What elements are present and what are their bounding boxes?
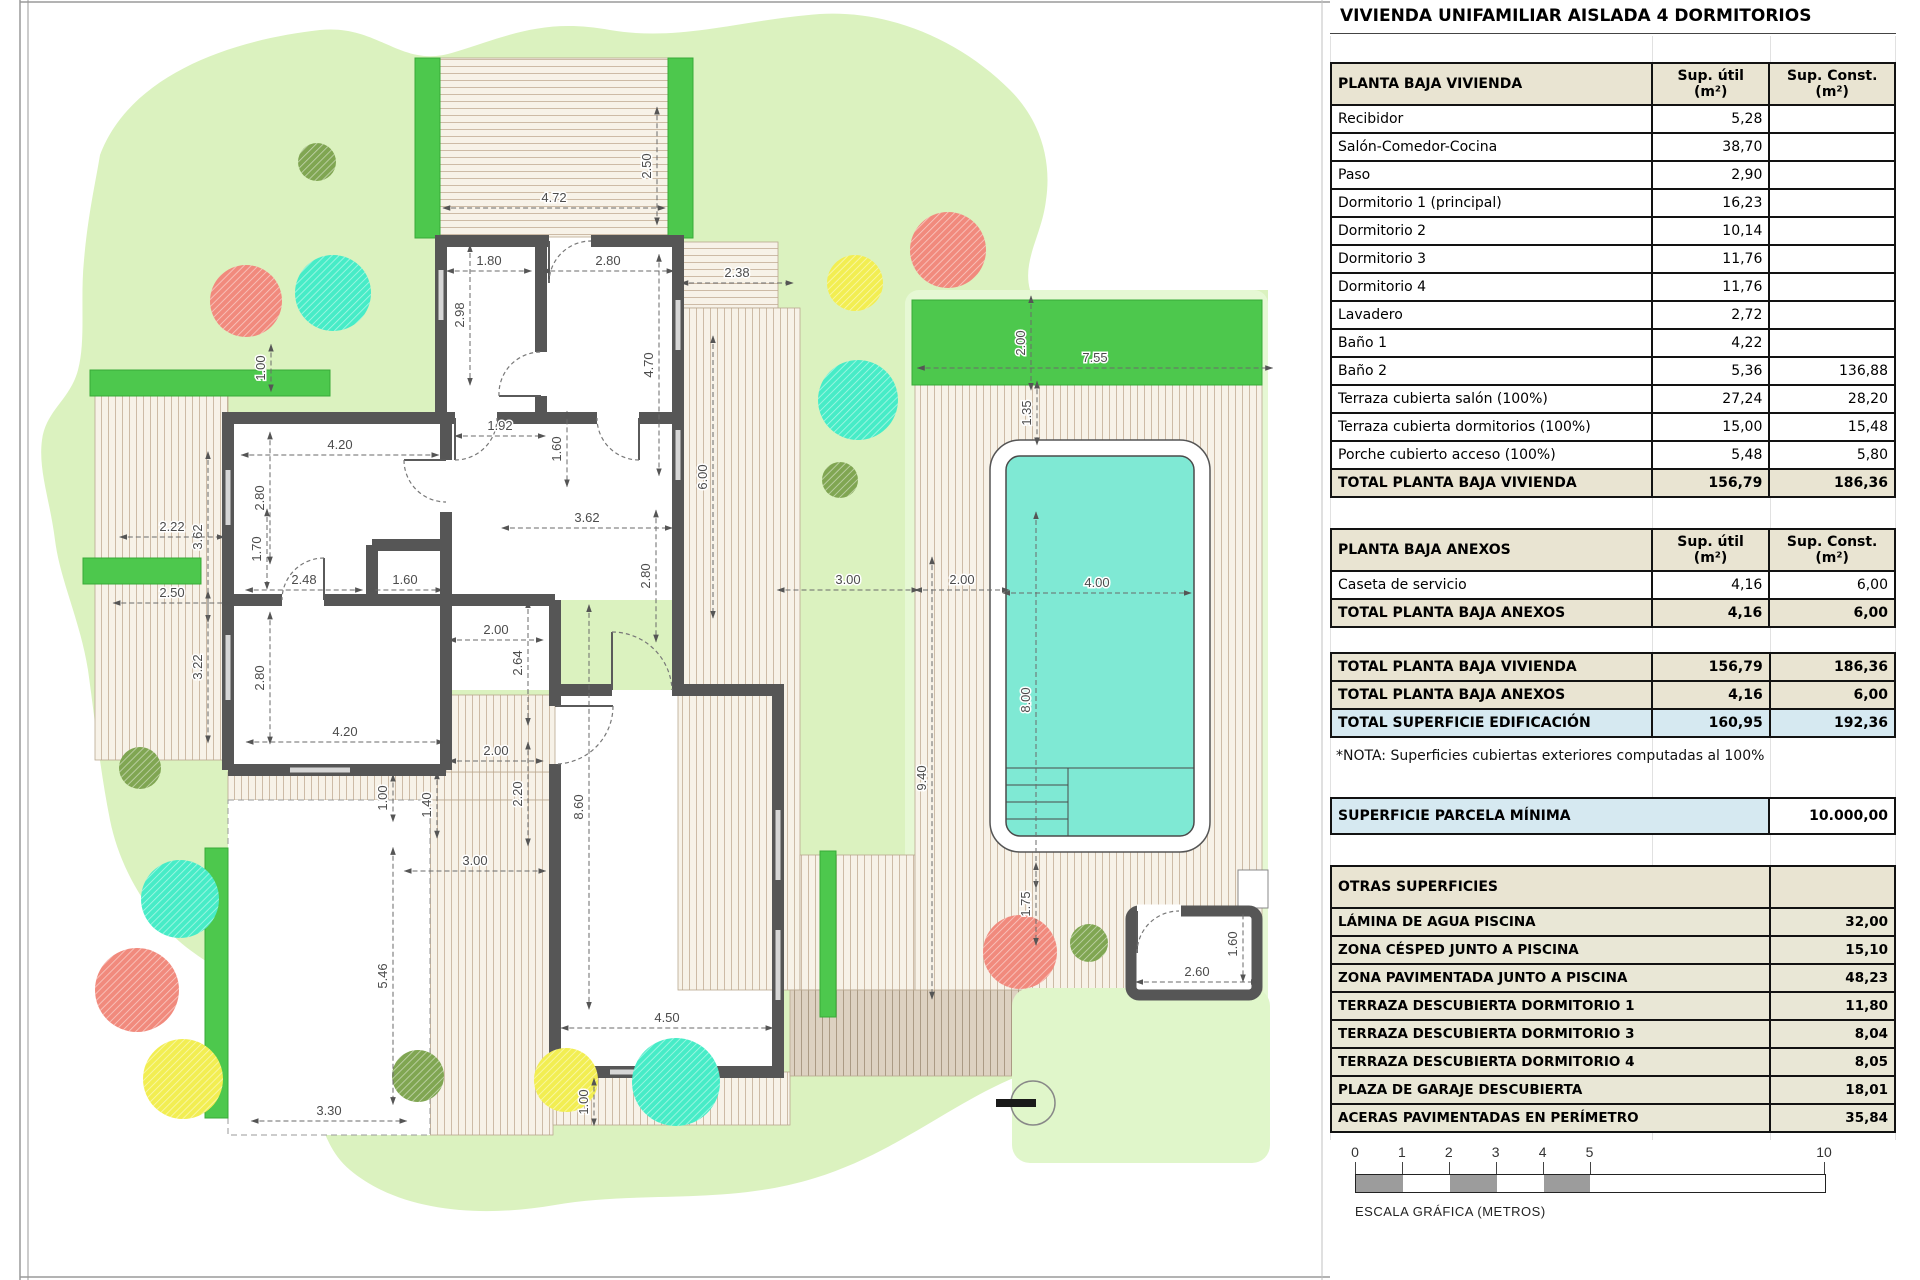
cell-value: 2,72 [1652,301,1769,329]
cell-label: Salón-Comedor-Cocina [1331,133,1652,161]
cell-label: Dormitorio 3 [1331,245,1652,273]
hedge [83,558,201,584]
column-header: Sup. Const.(m²) [1769,529,1895,571]
dim-label: 1.80 [476,253,501,268]
scale-tick-label: 1 [1398,1144,1406,1160]
table-header-row: PLANTA BAJA VIVIENDA Sup. útil(m²) Sup. … [1331,63,1895,105]
cell-value [1769,245,1895,273]
cell-value: 18,01 [1770,1076,1895,1104]
cell-value [1769,273,1895,301]
cell-label: TOTAL PLANTA BAJA VIVIENDA [1331,653,1652,681]
cell-label: TOTAL PLANTA BAJA VIVIENDA [1331,469,1652,497]
table-planta-baja-anexos: PLANTA BAJA ANEXOS Sup. útil(m²) Sup. Co… [1330,528,1896,628]
scale-tick [1496,1162,1497,1174]
table-header-row: OTRAS SUPERFICIES [1331,866,1895,908]
cell-value: 28,20 [1769,385,1895,413]
cell-label: Terraza cubierta dormitorios (100%) [1331,413,1652,441]
dim-label: 2.80 [252,485,267,510]
dim-label: 5.46 [375,963,390,988]
cell-label: Porche cubierto acceso (100%) [1331,441,1652,469]
cell-value: 10.000,00 [1769,798,1895,834]
table-totals-summary: TOTAL PLANTA BAJA VIVIENDA156,79186,36TO… [1330,652,1896,738]
hedge [668,58,693,238]
table-row: Baño 14,22 [1331,329,1895,357]
table-row: TOTAL PLANTA BAJA ANEXOS4,166,00 [1331,681,1895,709]
dim-label: 1.00 [375,785,390,810]
cell-value [1769,161,1895,189]
hedge [820,851,836,1017]
cell-value: 5,28 [1652,105,1769,133]
scale-segment [1450,1175,1497,1192]
scale-segment [1591,1175,1826,1192]
dim-label: 8.60 [571,794,586,819]
cell-value: 5,48 [1652,441,1769,469]
table-row: Caseta de servicio4,166,00 [1331,571,1895,599]
table-row: TOTAL PLANTA BAJA ANEXOS4,166,00 [1331,599,1895,627]
tree-teal [818,360,898,440]
cell-value: 11,80 [1770,992,1895,1020]
tree-olive [119,747,161,789]
scale-tick-label: 4 [1539,1144,1547,1160]
dim-label: 3.00 [835,572,860,587]
dim-label: 3.62 [574,510,599,525]
dim-label: 2.38 [724,265,749,280]
cell-value: 8,04 [1770,1020,1895,1048]
note: *NOTA: Superficies cubiertas exteriores … [1336,748,1764,764]
cell-label: ZONA PAVIMENTADA JUNTO A PISCINA [1331,964,1770,992]
cell-value: 32,00 [1770,908,1895,936]
cell-label: LÁMINA DE AGUA PISCINA [1331,908,1770,936]
cell-value [1769,329,1895,357]
cell-value: 35,84 [1770,1104,1895,1132]
dim-label: 2.50 [639,153,654,178]
cell-value: 10,14 [1652,217,1769,245]
cell-value: 186,36 [1770,653,1895,681]
dim-label: 2.00 [949,572,974,587]
table-row: TERRAZA DESCUBIERTA DORMITORIO 111,80 [1331,992,1895,1020]
scale-segment [1403,1175,1450,1192]
dim-label: 1.70 [249,536,264,561]
page-title: VIVIENDA UNIFAMILIAR AISLADA 4 DORMITORI… [1340,6,1811,26]
cell-label: Recibidor [1331,105,1652,133]
table-row: Paso2,90 [1331,161,1895,189]
dim-label: 2.00 [1013,330,1028,355]
column-header: PLANTA BAJA VIVIENDA [1331,63,1652,105]
cell-value: 15,10 [1770,936,1895,964]
cell-value: 156,79 [1652,653,1769,681]
table-parcela-minima: SUPERFICIE PARCELA MÍNIMA 10.000,00 [1330,797,1896,835]
cell-label: ZONA CÉSPED JUNTO A PISCINA [1331,936,1770,964]
cell-label: TERRAZA DESCUBIERTA DORMITORIO 3 [1331,1020,1770,1048]
dim-label: 2.80 [595,253,620,268]
cell-value: 4,16 [1652,599,1769,627]
dim-label: 1.60 [1225,931,1240,956]
table-row: TOTAL PLANTA BAJA VIVIENDA156,79186,36 [1331,469,1895,497]
cell-label: Dormitorio 1 (principal) [1331,189,1652,217]
table-row: ZONA CÉSPED JUNTO A PISCINA15,10 [1331,936,1895,964]
dim-label: 1.92 [487,418,512,433]
table-planta-baja-vivienda: PLANTA BAJA VIVIENDA Sup. útil(m²) Sup. … [1330,62,1896,498]
cell-value: 192,36 [1770,709,1895,737]
dim-label: 1.00 [576,1089,591,1114]
table-row: Dormitorio 210,14 [1331,217,1895,245]
cell-value: 15,48 [1769,413,1895,441]
tree-yellow [143,1039,223,1119]
cell-value: 4,16 [1652,571,1769,599]
cell-value: 186,36 [1769,469,1895,497]
table-row: Dormitorio 411,76 [1331,273,1895,301]
tree-teal [141,860,219,938]
table-row: Lavadero2,72 [1331,301,1895,329]
cell-value: 2,90 [1652,161,1769,189]
dim-label: 3.30 [316,1103,341,1118]
cell-value: 4,22 [1652,329,1769,357]
cell-label: Dormitorio 4 [1331,273,1652,301]
tree-teal [295,255,371,331]
table-row: Terraza cubierta salón (100%)27,2428,20 [1331,385,1895,413]
tree-olive [298,143,336,181]
scale-tick [1590,1162,1591,1174]
porch-terrace [440,58,668,237]
column-header: Sup. útil(m²) [1652,63,1769,105]
table-row: Porche cubierto acceso (100%)5,485,80 [1331,441,1895,469]
tree-red [210,265,282,337]
dim-label: 1.40 [419,792,434,817]
column-header: Sup. útil(m²) [1652,529,1769,571]
table-row: PLAZA DE GARAJE DESCUBIERTA18,01 [1331,1076,1895,1104]
dim-label: 2.20 [510,781,525,806]
table-row: TERRAZA DESCUBIERTA DORMITORIO 48,05 [1331,1048,1895,1076]
scale-tick [1449,1162,1450,1174]
dim-label: 4.20 [332,724,357,739]
table-row: Terraza cubierta dormitorios (100%)15,00… [1331,413,1895,441]
table-row: SUPERFICIE PARCELA MÍNIMA 10.000,00 [1331,798,1895,834]
cell-value: 11,76 [1652,273,1769,301]
cell-value: 160,95 [1652,709,1769,737]
dim-label: 2.98 [452,302,467,327]
hedge [90,370,330,396]
scale-segment [1356,1175,1403,1192]
table-row: ACERAS PAVIMENTADAS EN PERÍMETRO35,84 [1331,1104,1895,1132]
pool [990,440,1210,852]
cell-value: 48,23 [1770,964,1895,992]
scale-bar-label: ESCALA GRÁFICA (METROS) [1355,1204,1546,1219]
title-divider [1330,33,1896,34]
dim-label: 2.80 [252,665,267,690]
table-row: Dormitorio 311,76 [1331,245,1895,273]
dim-label: 2.00 [483,743,508,758]
tree-yellow [827,255,883,311]
column-header: PLANTA BAJA ANEXOS [1331,529,1652,571]
dim-label: 1.35 [1019,400,1034,425]
dim-label: 1.00 [253,355,268,380]
dim-label: 1.75 [1018,891,1033,916]
cell-value: 6,00 [1769,571,1895,599]
dim-label: 7.55 [1082,350,1107,365]
column-header: OTRAS SUPERFICIES [1331,866,1770,908]
table-row: TERRAZA DESCUBIERTA DORMITORIO 38,04 [1331,1020,1895,1048]
cell-value: 5,36 [1652,357,1769,385]
tree-olive [392,1050,444,1102]
table-row: TOTAL SUPERFICIE EDIFICACIÓN160,95192,36 [1331,709,1895,737]
table-row: Dormitorio 1 (principal)16,23 [1331,189,1895,217]
dim-label: 2.22 [159,519,184,534]
cell-label: Lavadero [1331,301,1652,329]
dim-label: 1.60 [392,572,417,587]
pool-water [1006,456,1194,836]
dim-label: 2.00 [483,622,508,637]
dim-label: 4.00 [1084,575,1109,590]
dim-label: 4.20 [327,437,352,452]
drawing-sheet: 2.504.721.802.802.984.701.004.201.921.60… [0,0,1920,1280]
dim-label: 2.48 [291,572,316,587]
cell-value: 6,00 [1770,681,1895,709]
cell-value [1769,217,1895,245]
scale-bar-strip [1355,1174,1826,1193]
hedge [415,58,440,238]
table-header-row: PLANTA BAJA ANEXOS Sup. útil(m²) Sup. Co… [1331,529,1895,571]
cell-value: 11,76 [1652,245,1769,273]
table-row: ZONA PAVIMENTADA JUNTO A PISCINA48,23 [1331,964,1895,992]
cell-label: PLAZA DE GARAJE DESCUBIERTA [1331,1076,1770,1104]
tree-red [910,212,986,288]
dim-label: 8.00 [1018,687,1033,712]
tree-olive [822,462,858,498]
cell-value: 156,79 [1652,469,1769,497]
cell-label: Baño 1 [1331,329,1652,357]
tree-olive [1070,924,1108,962]
table-otras-superficies: OTRAS SUPERFICIES LÁMINA DE AGUA PISCINA… [1330,865,1896,1133]
column-header [1770,866,1895,908]
cell-label: Caseta de servicio [1331,571,1652,599]
column-header: Sup. Const.(m²) [1769,63,1895,105]
cell-value: 6,00 [1769,599,1895,627]
cell-value: 38,70 [1652,133,1769,161]
scale-tick-label: 3 [1492,1144,1500,1160]
floor-plan: 2.504.721.802.802.984.701.004.201.921.60… [0,0,1330,1280]
court-pocket [446,695,555,772]
cell-value [1769,189,1895,217]
cell-label: TERRAZA DESCUBIERTA DORMITORIO 4 [1331,1048,1770,1076]
dim-label: 2.50 [159,585,184,600]
dim-label: 4.72 [541,190,566,205]
scale-tick-label: 10 [1816,1144,1832,1160]
cell-label: TERRAZA DESCUBIERTA DORMITORIO 1 [1331,992,1770,1020]
scale-tick-label: 5 [1586,1144,1594,1160]
dim-label: 2.64 [510,650,525,675]
cell-label: ACERAS PAVIMENTADAS EN PERÍMETRO [1331,1104,1770,1132]
deck-connector [800,855,915,990]
cell-label: SUPERFICIE PARCELA MÍNIMA [1331,798,1769,834]
table-row: Recibidor5,28 [1331,105,1895,133]
tree-teal [632,1038,720,1126]
cell-value: 27,24 [1652,385,1769,413]
scale-tick-label: 0 [1351,1144,1359,1160]
cell-value: 5,80 [1769,441,1895,469]
scale-bar: ESCALA GRÁFICA (METROS) 01234510 [1355,1144,1855,1224]
cell-label: Dormitorio 2 [1331,217,1652,245]
cell-value [1769,133,1895,161]
tree-red [983,915,1057,989]
scale-tick [1355,1162,1356,1174]
dim-label: 3.00 [462,853,487,868]
scale-tick [1543,1162,1544,1174]
cell-label: TOTAL PLANTA BAJA ANEXOS [1331,681,1652,709]
cell-label: Paso [1331,161,1652,189]
dim-label: 9.40 [914,765,929,790]
cell-value [1769,105,1895,133]
tree-red [95,948,179,1032]
dim-label: 1.60 [549,436,564,461]
scale-segment [1497,1175,1544,1192]
cell-value [1769,301,1895,329]
cell-value: 4,16 [1652,681,1769,709]
table-row: TOTAL PLANTA BAJA VIVIENDA156,79186,36 [1331,653,1895,681]
dim-label: 2.80 [638,563,653,588]
dim-label: 6.00 [695,464,710,489]
grass-patch [1012,988,1270,1163]
dim-label: 2.60 [1184,964,1209,979]
cell-value: 136,88 [1769,357,1895,385]
dim-label: 3.22 [190,654,205,679]
cell-label: TOTAL PLANTA BAJA ANEXOS [1331,599,1652,627]
cell-label: Baño 2 [1331,357,1652,385]
scale-segment [1544,1175,1591,1192]
south-walk [228,772,553,800]
area-table-panel: VIVIENDA UNIFAMILIAR AISLADA 4 DORMITORI… [1330,0,1896,1280]
cell-label: Terraza cubierta salón (100%) [1331,385,1652,413]
hedge-pool [912,300,1262,385]
scale-tick-label: 2 [1445,1144,1453,1160]
dim-label: 4.50 [654,1010,679,1025]
cell-label: TOTAL SUPERFICIE EDIFICACIÓN [1331,709,1652,737]
cell-value: 15,00 [1652,413,1769,441]
scale-tick [1824,1162,1825,1174]
table-row: Salón-Comedor-Cocina38,70 [1331,133,1895,161]
dim-label: 4.70 [641,352,656,377]
table-row: LÁMINA DE AGUA PISCINA32,00 [1331,908,1895,936]
cell-value: 8,05 [1770,1048,1895,1076]
scale-tick [1402,1162,1403,1174]
cell-value: 16,23 [1652,189,1769,217]
table-row: Baño 25,36136,88 [1331,357,1895,385]
